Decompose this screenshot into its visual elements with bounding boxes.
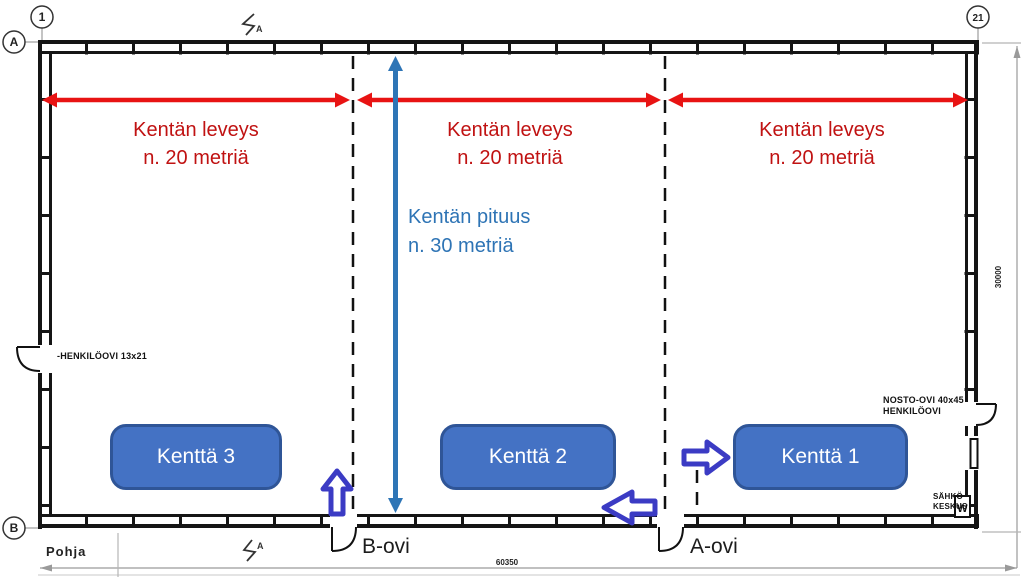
field-length-annotation: Kentän pituus n. 30 metriä [408, 203, 628, 261]
field-label: Kenttä 3 [157, 445, 235, 469]
up-block-arrow [323, 471, 351, 514]
person-door-left-label: -HENKILÖOVI 13x21 [57, 351, 147, 361]
field-width-line2: n. 20 metriä [380, 144, 640, 172]
field-width-line2: n. 20 metriä [692, 144, 952, 172]
arrowhead [357, 93, 372, 108]
field-length-line2: n. 30 metriä [408, 232, 628, 261]
width-arrows [42, 93, 968, 108]
sheet-label: Pohja [46, 544, 86, 559]
door-b-label: B-ovi [362, 535, 410, 559]
section-mark-a-bottom: A [257, 541, 264, 551]
grid-marker-1: 1 [39, 10, 46, 24]
field-button-kentta-3[interactable]: Kenttä 3 [110, 424, 282, 490]
electric-cabinet-label: SÄHKÖ KESKUS [933, 492, 968, 511]
field-width-annotation-middle: Kentän leveys n. 20 metriä [380, 116, 640, 172]
electric-line1: SÄHKÖ [933, 492, 968, 502]
left-block-arrow [604, 492, 655, 523]
lift-door-line1: NOSTO-OVI 40x45 [883, 395, 964, 406]
field-width-annotation-left: Kentän leveys n. 20 metriä [66, 116, 326, 172]
grid-marker-21: 21 [972, 13, 984, 24]
electric-line2: KESKUS [933, 502, 968, 512]
arrowhead [335, 93, 350, 108]
plan-linework: 1 21 A B A A W [0, 0, 1024, 578]
field-width-line1: Kentän leveys [692, 116, 952, 144]
field-length-line1: Kentän pituus [408, 203, 628, 232]
dimension-width: 60350 [496, 558, 519, 567]
field-width-line2: n. 20 metriä [66, 144, 326, 172]
dimension-height: 30000 [994, 265, 1003, 288]
field-label: Kenttä 2 [489, 445, 567, 469]
grid-marker-b: B [10, 521, 19, 535]
lift-door-leaf [971, 439, 978, 468]
lift-door-label: NOSTO-OVI 40x45 HENKILÖOVI [883, 395, 964, 417]
grid-marker-a: A [10, 35, 19, 49]
arrowhead [646, 93, 661, 108]
arrowhead [668, 93, 683, 108]
lift-door-line2: HENKILÖOVI [883, 406, 964, 417]
door-a-swing [659, 527, 683, 551]
door-b-swing [332, 527, 356, 551]
field-button-kentta-2[interactable]: Kenttä 2 [440, 424, 616, 490]
arrowhead-up [388, 56, 403, 71]
field-width-annotation-right: Kentän leveys n. 20 metriä [692, 116, 952, 172]
door-a-label: A-ovi [690, 535, 738, 559]
field-label: Kenttä 1 [781, 445, 859, 469]
arrowhead-down [388, 498, 403, 513]
field-button-kentta-1[interactable]: Kenttä 1 [733, 424, 908, 490]
field-width-line1: Kentän leveys [66, 116, 326, 144]
right-block-arrow [684, 442, 728, 473]
section-mark-a-top: A [256, 24, 263, 34]
field-width-line1: Kentän leveys [380, 116, 640, 144]
floor-plan: 1 21 A B A A W [0, 0, 1024, 578]
